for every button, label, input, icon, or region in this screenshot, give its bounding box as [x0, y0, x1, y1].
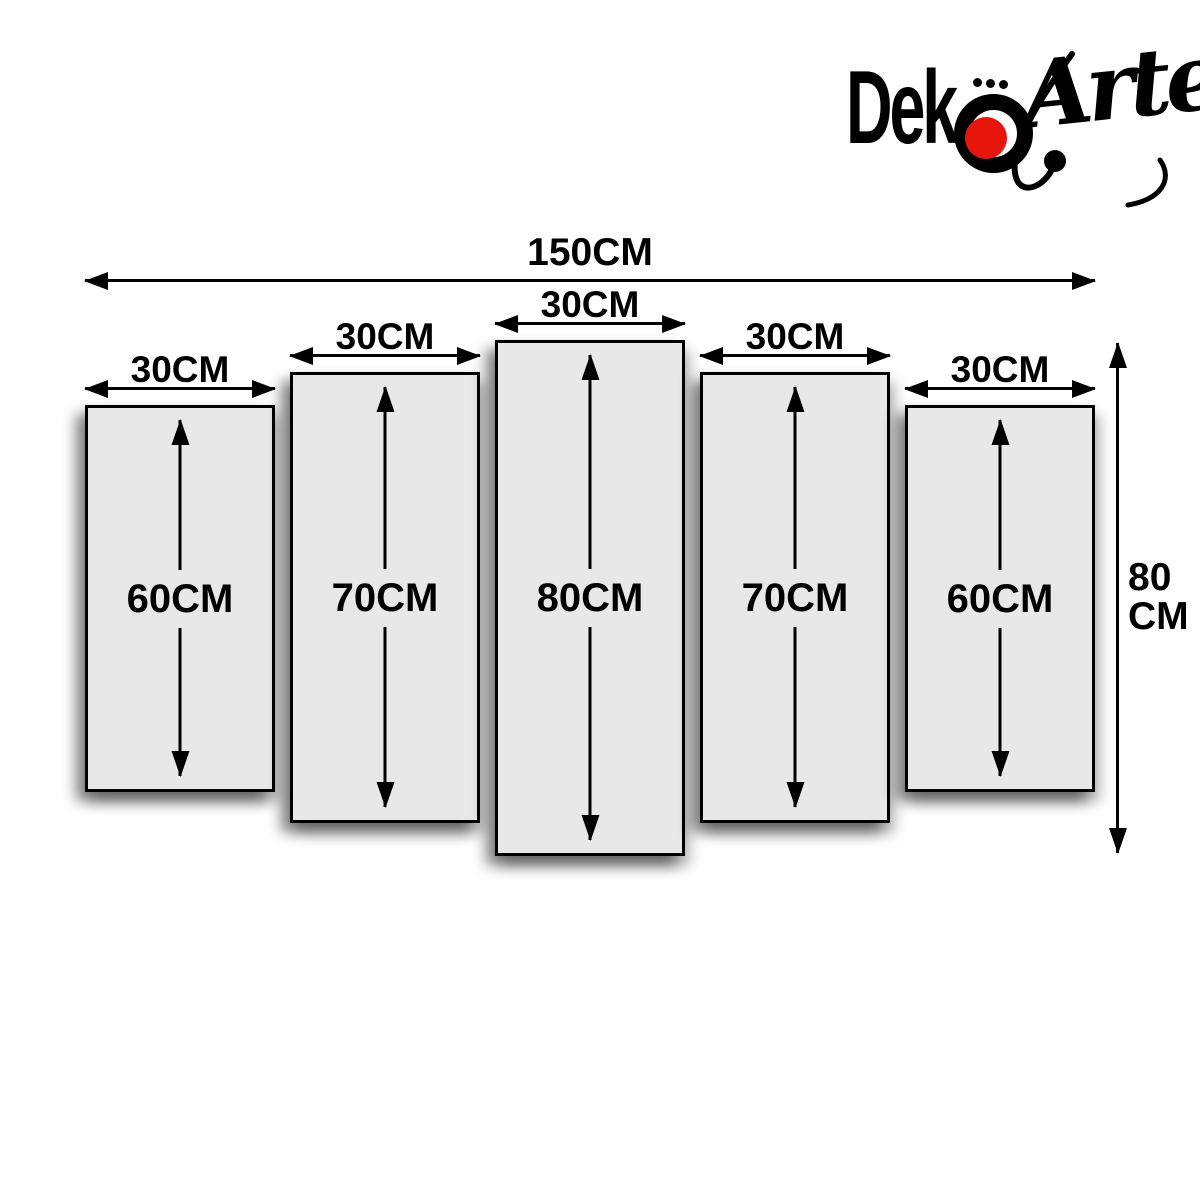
panel-1-width-arrow-icon	[85, 387, 275, 390]
panel-group-3: 30CM 80CM	[495, 340, 685, 856]
logo-text-script: Arte	[1016, 30, 1200, 142]
panel-5-canvas: 60CM	[905, 405, 1095, 792]
panel-3-canvas: 80CM	[495, 340, 685, 856]
panel-4-width-label: 30CM	[700, 318, 890, 355]
total-height-arrow-icon	[1116, 343, 1119, 853]
total-width-label: 150CM	[85, 233, 1095, 272]
panel-2-height-label: 70CM	[329, 569, 442, 627]
panel-5-width-arrow-icon	[905, 387, 1095, 390]
dimension-diagram: Dek Arte 150CM 80 CM 30CM 60CM 30CM	[0, 0, 1200, 1200]
panel-3-width-label: 30CM	[495, 286, 685, 323]
total-height-label-unit: CM	[1128, 597, 1189, 636]
panel-5-width-label: 30CM	[905, 351, 1095, 388]
panel-3-width-arrow-icon	[495, 322, 685, 325]
panel-5-height-label: 60CM	[944, 570, 1057, 628]
panel-group-1: 30CM 60CM	[85, 405, 275, 792]
panel-2-width-label: 30CM	[290, 318, 480, 355]
panel-4-height-label: 70CM	[739, 569, 852, 627]
panel-4-canvas: 70CM	[700, 372, 890, 823]
panel-group-4: 30CM 70CM	[700, 372, 890, 823]
panel-1-canvas: 60CM	[85, 405, 275, 792]
panel-2-canvas: 70CM	[290, 372, 480, 823]
panel-1-height-label: 60CM	[124, 570, 237, 628]
panel-group-5: 30CM 60CM	[905, 405, 1095, 792]
panel-1-width-label: 30CM	[85, 351, 275, 388]
panel-2-width-arrow-icon	[290, 354, 480, 357]
logo-text-bold: Dek	[846, 56, 955, 160]
total-height-label-value: 80	[1128, 558, 1189, 597]
total-width-arrow-icon	[85, 279, 1095, 282]
panel-3-height-label: 80CM	[534, 569, 647, 627]
total-height-label: 80 CM	[1128, 558, 1189, 636]
panel-4-width-arrow-icon	[700, 354, 890, 357]
panel-group-2: 30CM 70CM	[290, 372, 480, 823]
brand-logo: Dek Arte	[830, 42, 1190, 217]
